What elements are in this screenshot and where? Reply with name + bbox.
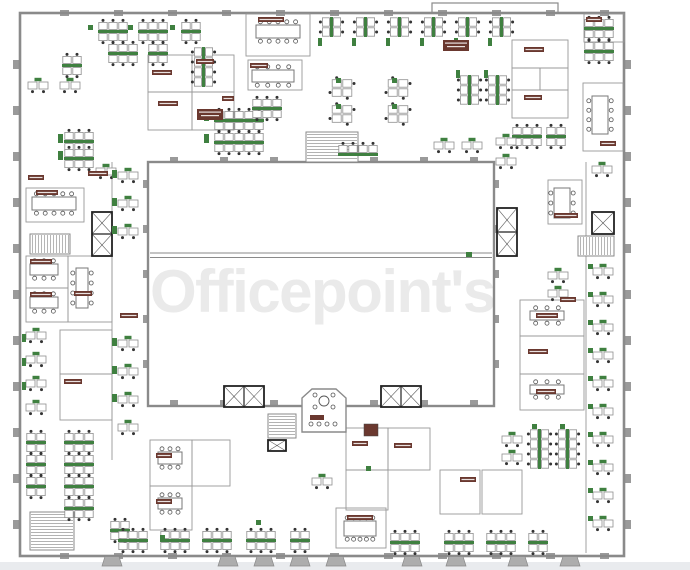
desk (63, 68, 71, 75)
green-cabinet (125, 392, 132, 395)
desk (301, 543, 309, 550)
room-label-textline (154, 72, 171, 73)
bench-spine (528, 541, 548, 544)
desk (542, 440, 549, 448)
chair-dot (562, 280, 565, 283)
desk (213, 531, 221, 538)
chair-dot (122, 19, 125, 22)
meeting-chair (358, 537, 362, 541)
chair-dot (248, 108, 251, 111)
bench-spine (64, 140, 94, 143)
chair-dot (124, 518, 127, 521)
meeting-chair (33, 309, 37, 313)
chair-dot (448, 530, 451, 533)
desk (75, 499, 83, 506)
plant-green (112, 394, 117, 402)
green-cabinet (600, 264, 607, 267)
desk (26, 356, 35, 363)
chair-dot (74, 90, 77, 93)
desk (37, 467, 45, 474)
desk (593, 408, 602, 415)
chair-dot (457, 79, 460, 82)
desk (171, 543, 179, 550)
chair-dot (457, 89, 460, 92)
desk (547, 139, 555, 146)
chair-dot (549, 433, 552, 436)
chair-dot (362, 142, 365, 145)
chair-dot (346, 123, 349, 126)
desk (223, 531, 231, 538)
desk (225, 123, 233, 130)
chair-dot (276, 96, 279, 99)
desk (558, 430, 565, 438)
desk (85, 161, 93, 168)
chair-dot (152, 19, 155, 22)
chair-dot (507, 99, 510, 102)
meeting-table (252, 70, 294, 82)
chair-dot (30, 474, 33, 477)
room-outline (512, 90, 568, 118)
desk (592, 166, 601, 173)
desk (411, 545, 419, 552)
desk (245, 111, 253, 118)
desk (492, 28, 499, 36)
desk (558, 450, 565, 458)
meeting-chair (556, 306, 560, 310)
meeting-table (256, 25, 300, 38)
plant-green (588, 348, 593, 353)
desk (75, 455, 83, 462)
plant-green (392, 78, 397, 83)
desk (255, 133, 263, 140)
room-label-textline (158, 501, 171, 502)
desk (339, 145, 347, 152)
chair-dot (608, 61, 611, 64)
desk (585, 31, 593, 38)
chair-dot (112, 19, 115, 22)
meeting-chair (534, 380, 538, 384)
plant-green (58, 134, 63, 143)
room-outline (388, 428, 430, 470)
green-cabinet (600, 376, 607, 379)
green-cabinet (509, 432, 516, 435)
chair-dot (527, 433, 530, 436)
desk (570, 430, 577, 438)
plant-green (22, 358, 26, 366)
room-label-textline (562, 299, 575, 300)
meeting-chair (345, 537, 349, 541)
desk (118, 172, 127, 179)
chair-dot (142, 550, 145, 553)
chair-dot (152, 41, 155, 44)
chair-dot (468, 530, 471, 533)
desk (399, 80, 408, 88)
desk (458, 18, 465, 26)
desk (504, 18, 511, 26)
meeting-table (32, 197, 76, 210)
chair-dot (489, 21, 492, 24)
desk (65, 161, 73, 168)
bench-spine (62, 64, 82, 67)
room-outline (68, 256, 112, 322)
chair-dot (29, 340, 32, 343)
desk (223, 543, 231, 550)
desk (37, 477, 45, 484)
desk (129, 424, 138, 431)
chair-dot (260, 550, 263, 553)
chair-dot (455, 21, 458, 24)
desk (465, 545, 473, 552)
desk (118, 396, 127, 403)
desk (323, 478, 332, 485)
chair-dot (112, 41, 115, 44)
bench-spine (26, 463, 46, 466)
green-cabinet (33, 328, 40, 331)
chair-dot (607, 304, 610, 307)
room-outline (440, 470, 480, 514)
bench-spine (496, 75, 499, 105)
chair-dot (387, 31, 390, 34)
desk (434, 142, 443, 149)
chair-dot (402, 97, 405, 100)
desk (171, 531, 179, 538)
chair-dot (88, 146, 91, 149)
chair-dot (342, 142, 345, 145)
desk (75, 161, 83, 168)
desk (604, 324, 613, 331)
desk (245, 133, 253, 140)
bench-spine (26, 441, 46, 444)
chair-dot (142, 41, 145, 44)
chair-dot (437, 150, 440, 153)
chair-dot (596, 388, 599, 391)
chair-dot (510, 166, 513, 169)
room-label-textline (556, 215, 577, 216)
green-cabinet (33, 400, 40, 403)
meeting-chair (587, 108, 591, 112)
green-cabinet (67, 78, 74, 81)
meeting-chair (61, 192, 65, 196)
desk (542, 430, 549, 438)
green-cabinet (600, 404, 607, 407)
desk (322, 28, 329, 36)
chair-dot (526, 124, 529, 127)
chair-dot (132, 550, 135, 553)
desk (129, 340, 138, 347)
chair-dot (549, 453, 552, 456)
meeting-chair (276, 65, 280, 69)
desk (547, 127, 555, 134)
chair-dot (195, 19, 198, 22)
footing (508, 557, 528, 567)
chair-dot (511, 31, 514, 34)
chair-dot (596, 528, 599, 531)
desk (27, 455, 35, 462)
desk (570, 440, 577, 448)
chair-dot (132, 236, 135, 239)
desk (85, 433, 93, 440)
chair-dot (250, 550, 253, 553)
chair-dot (78, 168, 81, 171)
desk (225, 111, 233, 118)
chair-dot (607, 472, 610, 475)
chair-dot (228, 130, 231, 133)
desk (225, 133, 233, 140)
green-cabinet (125, 364, 132, 367)
desk (492, 18, 499, 26)
chair-dot (477, 21, 480, 24)
desk (402, 28, 409, 36)
chair-dot (499, 166, 502, 169)
chair-dot (114, 540, 117, 543)
plant-green (488, 38, 492, 46)
chair-dot (326, 486, 329, 489)
bench-spine (202, 539, 232, 542)
chair-dot (485, 79, 488, 82)
desk (255, 145, 263, 152)
chair-dot (78, 474, 81, 477)
meeting-chair (556, 395, 560, 399)
green-cabinet (125, 420, 132, 423)
desk (529, 545, 537, 552)
desk (215, 133, 223, 140)
chair-dot (598, 39, 601, 42)
desk (539, 533, 547, 540)
room-label-textline (445, 43, 467, 44)
desk (39, 82, 48, 89)
desk (149, 22, 157, 29)
desk (273, 111, 281, 118)
chair-dot (409, 21, 412, 24)
meeting-chair (71, 271, 75, 275)
chair-dot (206, 550, 209, 553)
desk (507, 533, 515, 540)
desk (604, 296, 613, 303)
room-label-textline (602, 143, 615, 144)
room-label-textline (201, 115, 219, 116)
chair-dot (490, 552, 493, 555)
meeting-chair (545, 321, 549, 325)
plant-green (128, 25, 133, 30)
desk (445, 142, 454, 149)
meeting-chair (42, 309, 46, 313)
chair-dot (455, 31, 458, 34)
desk (129, 543, 137, 550)
chair-dot (78, 496, 81, 499)
room-outline (512, 40, 568, 68)
chair-dot (479, 99, 482, 102)
chair-dot (260, 528, 263, 531)
meeting-chair (70, 211, 74, 215)
chair-dot (394, 530, 397, 533)
chair-dot (68, 496, 71, 499)
chair-dot (532, 530, 535, 533)
room-label-textline (526, 97, 541, 98)
desk (548, 290, 557, 297)
plant-green (588, 264, 593, 269)
chair-dot (500, 530, 503, 533)
meeting-chair (325, 422, 329, 426)
chair-dot (510, 146, 513, 149)
plant-green (170, 25, 175, 30)
desk (26, 404, 35, 411)
desk (109, 56, 117, 63)
meeting-chair (43, 211, 47, 215)
room-label-textline (396, 445, 411, 446)
desk (161, 543, 169, 550)
chair-dot (228, 152, 231, 155)
desk (37, 455, 45, 462)
desk (436, 18, 443, 26)
desk (507, 158, 516, 165)
desk (253, 111, 261, 118)
meeting-chair (176, 510, 180, 514)
chair-dot (40, 430, 43, 433)
plant-green (588, 488, 593, 493)
chair-dot (577, 433, 580, 436)
chair-dot (607, 276, 610, 279)
room-label-textline (530, 351, 547, 352)
chair-dot (142, 19, 145, 22)
chair-dot (596, 472, 599, 475)
desk (73, 68, 81, 75)
desk (593, 352, 602, 359)
desk (111, 521, 119, 528)
desk (533, 127, 541, 134)
chair-dot (608, 39, 611, 42)
chair-dot (385, 117, 388, 120)
chair-dot (164, 528, 167, 531)
desk (28, 82, 37, 89)
chair-dot (404, 530, 407, 533)
plant-green (466, 252, 472, 257)
bench-spine (398, 17, 401, 37)
desk (159, 34, 167, 41)
chair-dot (598, 61, 601, 64)
chair-dot (30, 430, 33, 433)
bench-spine (26, 485, 46, 488)
chair-dot (121, 236, 124, 239)
desk (37, 404, 46, 411)
desk (60, 82, 69, 89)
desk (65, 499, 73, 506)
desk (119, 543, 127, 550)
chair-dot (526, 146, 529, 149)
room-label-textline (158, 455, 171, 456)
room-label-textline (198, 61, 213, 62)
chair-dot (458, 530, 461, 533)
chair-dot (507, 79, 510, 82)
chair-dot (596, 332, 599, 335)
chair-dot (226, 528, 229, 531)
chair-dot (195, 41, 198, 44)
chair-dot (121, 180, 124, 183)
desk (593, 436, 602, 443)
room-label-textline (538, 315, 557, 316)
chair-dot (122, 41, 125, 44)
desk (257, 543, 265, 550)
chair-dot (414, 552, 417, 555)
desk (593, 464, 602, 471)
desk (139, 22, 147, 29)
meeting-chair (276, 83, 280, 87)
plant-green (588, 404, 593, 409)
plant-green (112, 198, 117, 206)
desk (593, 380, 602, 387)
desk (401, 533, 409, 540)
chair-dot (121, 348, 124, 351)
desk (388, 115, 397, 123)
chair-dot (162, 19, 165, 22)
desk (149, 56, 157, 63)
chair-dot (542, 530, 545, 533)
chair-dot (121, 404, 124, 407)
meeting-chair (176, 447, 180, 451)
plant-green (112, 338, 117, 346)
chair-dot (527, 453, 530, 456)
room-label-textline (76, 293, 91, 294)
desk (121, 521, 129, 528)
chair-dot (404, 552, 407, 555)
room-label-textline (252, 65, 267, 66)
desk (118, 368, 127, 375)
chair-dot (30, 452, 33, 455)
chair-dot (88, 129, 91, 132)
desk (391, 545, 399, 552)
desk (455, 533, 463, 540)
plant-green (588, 460, 593, 465)
desk (85, 132, 93, 139)
meeting-chair (51, 309, 55, 313)
desk (27, 467, 35, 474)
desk (194, 78, 201, 86)
chair-dot (216, 528, 219, 531)
desk (472, 96, 479, 104)
chair-dot (409, 82, 412, 85)
desk (263, 99, 271, 106)
chair-dot (40, 340, 43, 343)
desk (119, 22, 127, 29)
room-label (197, 109, 223, 120)
green-cabinet (319, 474, 326, 477)
meeting-chair (160, 510, 164, 514)
meeting-chair (587, 99, 591, 103)
chair-dot (31, 90, 34, 93)
meeting-chair (42, 276, 46, 280)
chair-dot (596, 444, 599, 447)
chair-dot (607, 332, 610, 335)
desk (557, 139, 565, 146)
desk (585, 42, 593, 49)
chair-dot (78, 146, 81, 149)
chair-dot (218, 130, 221, 133)
desk (496, 138, 505, 145)
desk (65, 149, 73, 156)
chair-dot (266, 96, 269, 99)
desk (37, 356, 46, 363)
meeting-chair (89, 281, 93, 285)
desk (500, 86, 507, 94)
meeting-chair (34, 211, 38, 215)
desk (109, 22, 117, 29)
chair-dot (511, 21, 514, 24)
chair-dot (213, 81, 216, 84)
chair-dot (414, 530, 417, 533)
meeting-chair (160, 465, 164, 469)
meeting-chair (89, 271, 93, 275)
desk (604, 464, 613, 471)
green-cabinet (600, 516, 607, 519)
